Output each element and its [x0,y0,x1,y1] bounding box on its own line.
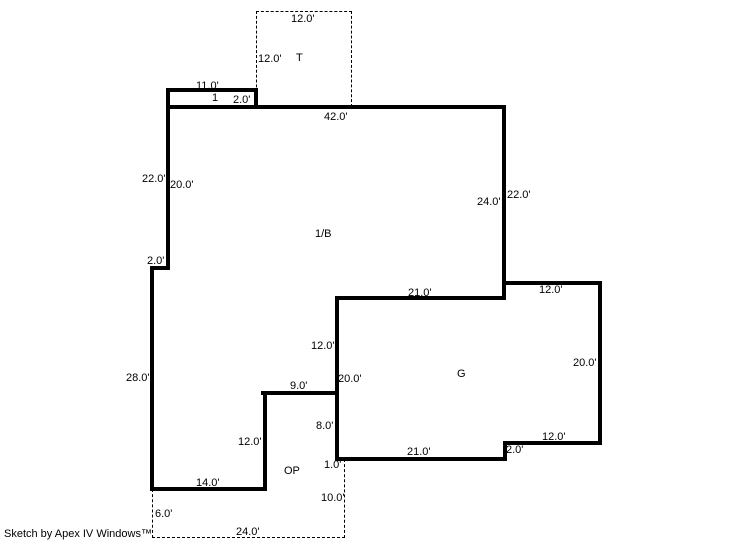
dim-op-left-wall: 12.0' [238,437,262,448]
dim-garage-step: 2.0' [506,445,523,456]
dim-garage-bottom: 21.0' [407,447,431,458]
dim-op-top: 9.0' [290,381,307,392]
dim-garage-right: 20.0' [573,358,597,369]
dim-op-bottom-dashed: 24.0' [236,527,260,538]
area-label-garage: G [457,369,466,380]
dim-porch-depth: 2.0' [233,95,250,106]
dim-t-left: 12.0' [258,54,282,65]
dim-garage-ext-top: 12.0' [539,285,563,296]
dim-garage-left-total: 20.0' [338,374,362,385]
area-label-main: 1/B [315,229,332,240]
dim-main-left-inner: 20.0' [170,180,194,191]
floorplan-sketch: 12.0' 12.0' 11.0' 2.0' 42.0' 22.0' 20.0'… [0,0,746,547]
dim-main-left-jog: 2.0' [147,256,164,267]
dim-main-left-outer: 22.0' [142,174,166,185]
footer-branding: Sketch by Apex IV Windows™ [4,529,152,540]
dim-op-right-dashed: 10.0' [321,493,345,504]
dim-main-top: 42.0' [324,112,348,123]
area-label-t: T [296,53,303,64]
op-dashed-left [152,489,153,538]
dim-main-left-lower: 28.0' [126,373,150,384]
dim-op-gap: 1.0' [324,460,341,471]
wall-main-top [166,105,506,109]
dim-garage-top: 21.0' [408,288,432,299]
area-label-porch: 1 [212,93,218,104]
wall-op-left [263,391,267,491]
dim-main-right-outer: 22.0' [507,190,531,201]
dim-t-top: 12.0' [291,14,315,25]
dim-main-right-inner: 24.0' [477,197,501,208]
wall-garage-right [598,281,602,445]
dim-garage-bottom-right: 12.0' [542,432,566,443]
dim-garage-left-upper: 12.0' [311,341,335,352]
area-label-open-porch: OP [284,466,300,477]
wall-main-left-lower [150,266,154,491]
dim-op-left-dashed: 6.0' [155,509,172,520]
dim-porch-top: 11.0' [196,81,219,92]
wall-main-right [502,105,506,300]
dim-garage-left-lower: 8.0' [316,421,333,432]
dim-main-bottom: 14.0' [196,478,220,489]
